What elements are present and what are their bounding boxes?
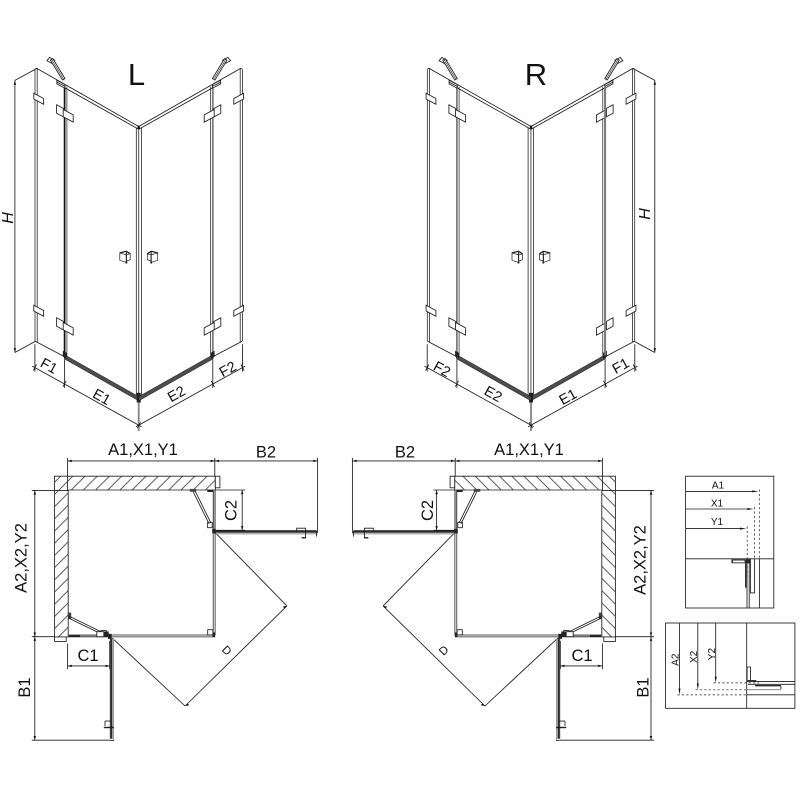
svg-text:E1: E1 [90, 386, 113, 409]
svg-text:A2: A2 [671, 653, 682, 666]
svg-text:D: D [437, 644, 451, 658]
svg-text:E1: E1 [557, 386, 580, 409]
svg-text:E2: E2 [481, 383, 504, 406]
svg-text:A2,X2,Y2: A2,X2,Y2 [632, 525, 650, 595]
svg-text:B1: B1 [16, 677, 34, 697]
svg-text:F2: F2 [430, 359, 453, 381]
svg-text:Y1: Y1 [711, 517, 724, 528]
svg-text:E2: E2 [165, 383, 188, 406]
svg-text:C2: C2 [419, 500, 437, 521]
svg-text:C1: C1 [77, 647, 98, 665]
svg-text:Y2: Y2 [707, 648, 718, 661]
svg-text:F2: F2 [217, 359, 240, 381]
svg-text:D: D [219, 644, 233, 658]
svg-text:H: H [637, 208, 654, 220]
svg-text:F1: F1 [37, 356, 60, 378]
svg-text:R: R [525, 57, 547, 92]
svg-text:X1: X1 [711, 499, 724, 510]
svg-text:A1: A1 [712, 481, 725, 492]
svg-text:A1,X1,Y1: A1,X1,Y1 [108, 441, 178, 459]
svg-text:B2: B2 [256, 444, 276, 462]
svg-text:H: H [0, 212, 17, 224]
svg-text:B2: B2 [395, 444, 415, 462]
svg-text:F1: F1 [610, 356, 633, 378]
svg-text:A1,X1,Y1: A1,X1,Y1 [494, 441, 564, 459]
svg-text:C2: C2 [222, 500, 240, 521]
svg-text:L: L [128, 57, 145, 92]
svg-text:X2: X2 [689, 650, 700, 663]
svg-text:C1: C1 [571, 647, 592, 665]
svg-text:A2,X2,Y2: A2,X2,Y2 [12, 523, 30, 593]
svg-text:B1: B1 [635, 677, 653, 697]
